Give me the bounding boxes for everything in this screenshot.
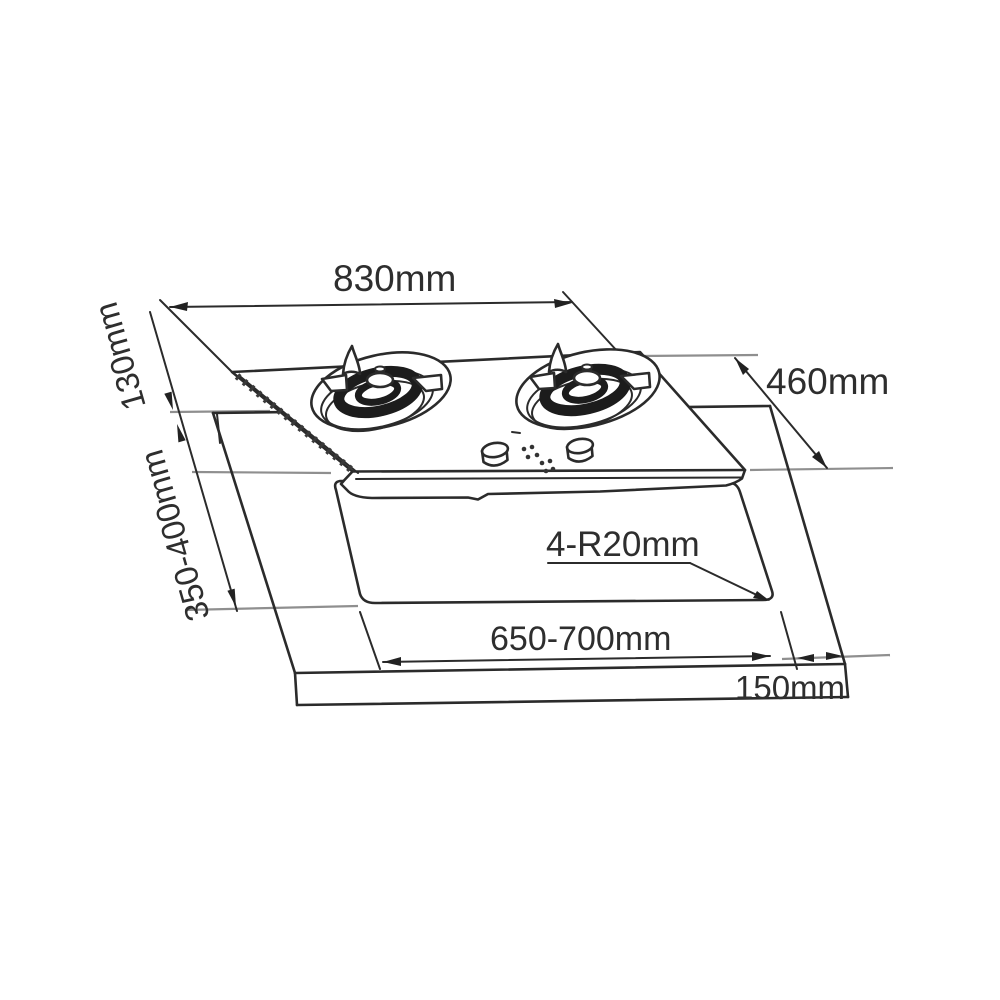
arrowhead-130-lower: [164, 392, 173, 410]
dim-corner-radius-label: 4-R20mm: [546, 525, 700, 564]
diagram-svg: 830mm 460mm 130mm 350-400mm 4-R20mm 650-…: [0, 0, 1000, 1000]
ext-650-left: [360, 612, 380, 669]
dim-hob-width-label: 830mm: [333, 258, 456, 299]
ext-650-right: [781, 612, 797, 669]
ref-line-hob-back-extension: [640, 355, 758, 356]
ref-line-front-left: [192, 472, 331, 473]
countertop-left-edge: [213, 413, 295, 673]
arrowhead-150-left: [797, 654, 814, 662]
arrowhead-830-left: [170, 302, 188, 311]
ext-830-left: [160, 300, 232, 372]
left-burner-flame-icon: [343, 346, 360, 374]
arrowhead-350-lower: [227, 589, 236, 607]
dim-cutout-width-label: 650-700mm: [490, 620, 671, 658]
ref-line-hob-front-extension: [750, 468, 893, 470]
arrowhead-650-right: [752, 652, 770, 661]
hob-installation-diagram: 830mm 460mm 130mm 350-400mm 4-R20mm 650-…: [0, 0, 1000, 1000]
panel-mark: [512, 432, 520, 433]
dim-side-margin-label: 150mm: [735, 669, 845, 706]
dim-back-offset-label: 130mm: [87, 298, 153, 414]
arrowhead-650-left: [383, 657, 401, 666]
right-burner-flame-icon: [549, 344, 566, 372]
ext-830-right: [563, 292, 618, 352]
right-burner-cap-top: [582, 365, 592, 370]
countertop-front-right-corner: [845, 664, 848, 697]
left-burner-cap-top: [375, 367, 385, 372]
countertop-front-left-corner: [295, 673, 297, 705]
left-burner-cap: [367, 373, 393, 387]
hob-front-edge: [353, 470, 746, 472]
dim-hob-depth-label: 460mm: [766, 361, 889, 402]
right-burner-cap: [574, 371, 600, 385]
dim-830-line: [170, 302, 572, 307]
arrowhead-150-right: [826, 652, 843, 660]
hob-outline: [232, 352, 745, 500]
